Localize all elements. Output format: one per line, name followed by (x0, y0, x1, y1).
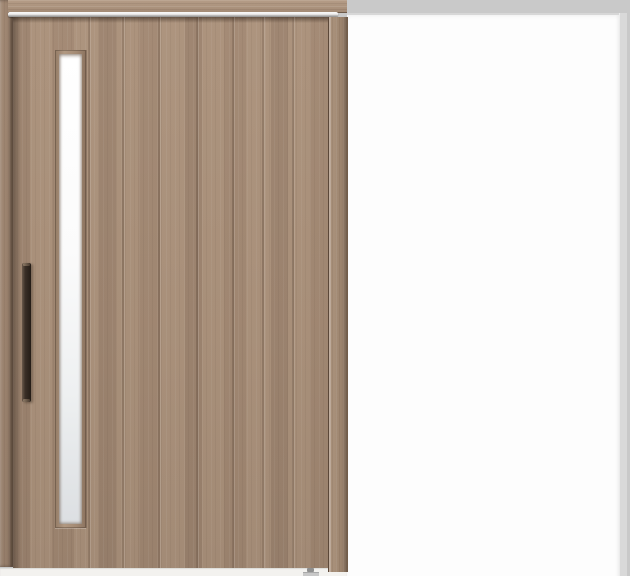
product-photo-sliding-door (0, 0, 630, 576)
frosted-glass-pane (59, 54, 82, 524)
door-handle (22, 263, 31, 402)
wood-grain-seam (232, 17, 234, 568)
floor-strip (0, 568, 347, 576)
wood-grain-seam (196, 17, 198, 568)
door-right-stile (328, 17, 348, 572)
floor-guide-base (303, 572, 319, 576)
wood-grain-seam (262, 17, 264, 568)
wood-grain-seam (158, 17, 160, 568)
floor-guide (303, 568, 319, 576)
wood-grain-seam (292, 17, 294, 568)
wood-grain-seam (88, 17, 90, 568)
wood-grain-seam (122, 17, 124, 568)
doorway-opening (347, 13, 619, 576)
doorway-frame-right (619, 13, 627, 576)
left-door-frame (0, 0, 13, 567)
glass-slit-window-frame (55, 50, 86, 528)
